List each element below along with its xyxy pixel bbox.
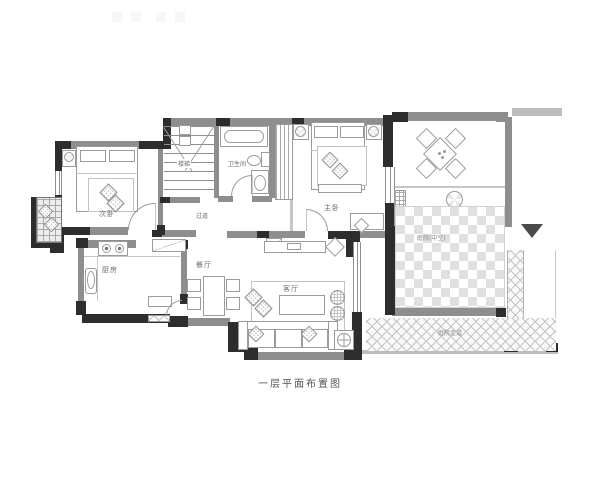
wall-segment <box>55 149 62 171</box>
shoe-cabinet <box>152 239 186 252</box>
cabinet <box>179 125 191 135</box>
wall-segment <box>186 318 230 326</box>
door-arc <box>231 175 252 196</box>
table-decor <box>441 156 444 159</box>
wall-segment <box>383 115 393 167</box>
table-decor <box>443 150 446 153</box>
entry-arrow-icon <box>521 224 543 238</box>
coffee-table <box>279 295 325 315</box>
wall-segment <box>76 301 86 315</box>
sofa-cushion <box>275 329 302 348</box>
wall-segment <box>152 230 162 237</box>
door-leaf <box>155 203 156 230</box>
watermark-block <box>112 12 122 22</box>
room-label-bathroom: 卫生间 <box>228 159 246 168</box>
wall-segment <box>328 231 346 239</box>
wall-segment <box>216 118 230 126</box>
tv <box>287 243 301 250</box>
room-label-corridor: 过道 <box>196 211 208 220</box>
plant-icon <box>64 152 74 162</box>
cabinet <box>179 136 191 146</box>
bed-bench <box>318 184 362 193</box>
wall-segment <box>269 231 305 238</box>
room-label-dining: 餐厅 <box>196 260 212 270</box>
wall-segment <box>158 149 163 227</box>
stove-burner <box>115 244 124 253</box>
wall-segment <box>218 196 233 202</box>
wall-segment <box>90 227 128 235</box>
chair <box>187 297 201 310</box>
chair <box>226 279 240 292</box>
wall-segment <box>227 231 257 238</box>
wall-segment <box>496 308 506 317</box>
decor-diamond <box>325 237 345 257</box>
wall-segment <box>168 316 188 327</box>
door-leaf <box>252 175 253 196</box>
sink-basin <box>254 175 266 191</box>
sofa-arm <box>238 321 248 350</box>
watermark-block <box>131 12 141 22</box>
atrium-tile-floor <box>395 206 505 308</box>
wall-segment <box>55 141 71 149</box>
wall-segment <box>139 141 163 149</box>
wall-segment <box>257 231 269 238</box>
garden-path <box>507 250 524 318</box>
plant-icon <box>295 126 306 137</box>
pouf <box>330 290 345 305</box>
stove-burner <box>102 244 111 253</box>
door-leaf <box>306 209 307 231</box>
pouf <box>330 306 345 321</box>
room-label-secondary-bedroom: 次卧 <box>99 209 115 219</box>
pillow <box>109 150 135 162</box>
fan-decor <box>337 333 351 347</box>
wall-segment <box>214 124 219 198</box>
room-label-stairs: 楼梯 <box>177 159 191 168</box>
wall-segment <box>31 243 62 248</box>
table-decor <box>438 152 441 155</box>
floor-plan: 次卧 楼梯 卫生间 过道 主卧 庭院(中空) <box>0 0 600 497</box>
wall-segment <box>290 200 293 231</box>
pillow <box>80 150 106 162</box>
sink-basin <box>87 271 95 289</box>
room-label-garden-path: 庭院走道 <box>438 328 462 337</box>
window <box>353 242 361 312</box>
pillow <box>314 126 338 138</box>
toilet-tank <box>261 152 270 167</box>
room-label-living: 客厅 <box>283 284 299 294</box>
wall-segment <box>512 108 562 116</box>
wall-segment <box>252 196 272 202</box>
plan-caption: 一层平面布置图 <box>220 375 380 390</box>
wall-segment <box>392 308 496 316</box>
pillow <box>340 126 364 138</box>
watermark-block <box>175 12 185 22</box>
blanket-line <box>76 173 138 174</box>
window <box>55 171 62 195</box>
wall-segment <box>76 238 88 248</box>
toilet-bowl <box>247 155 261 166</box>
wall-segment <box>505 117 512 227</box>
window <box>148 315 170 322</box>
wall-segment <box>392 112 408 122</box>
threshold-line <box>395 186 505 188</box>
watermark-block <box>156 12 166 22</box>
wall-segment <box>160 230 196 237</box>
chair <box>187 279 201 292</box>
plant-icon <box>368 126 379 137</box>
counter-edge <box>84 256 180 257</box>
room-label-master-bedroom: 主卧 <box>324 203 340 213</box>
counter-edge <box>97 256 98 301</box>
dining-table <box>203 276 225 316</box>
chair <box>226 297 240 310</box>
bathtub-basin <box>224 130 264 143</box>
room-label-kitchen: 厨房 <box>102 265 118 275</box>
wall-segment <box>258 352 346 360</box>
room-label-atrium: 庭院(中空) <box>417 233 446 242</box>
wall-segment <box>62 227 90 235</box>
wall-segment <box>408 112 498 121</box>
wardrobe <box>275 124 293 200</box>
